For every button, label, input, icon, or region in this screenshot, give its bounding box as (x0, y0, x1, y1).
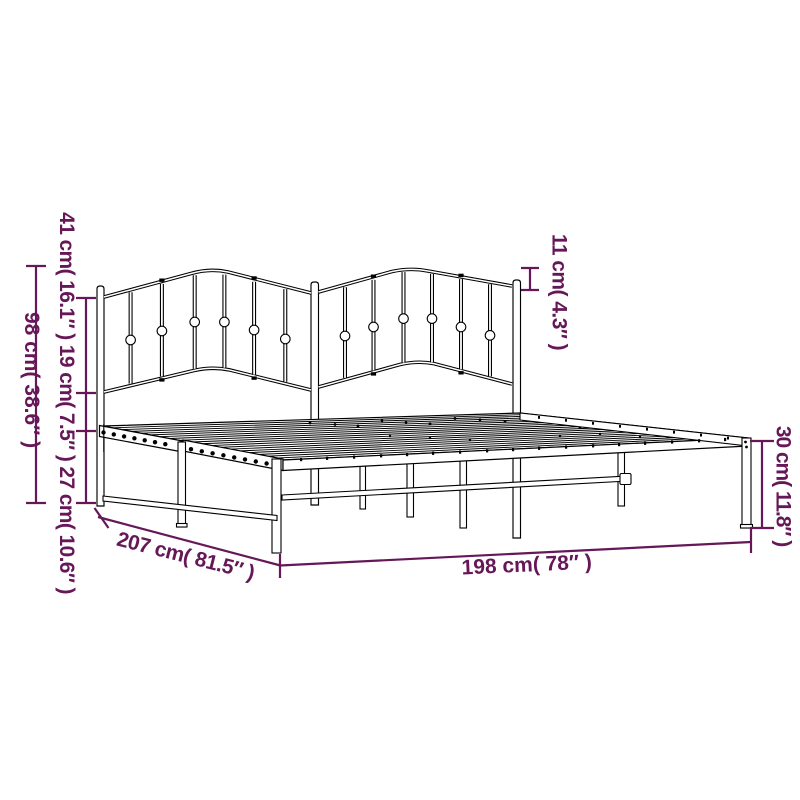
svg-text:98 cm( 38.6″ ): 98 cm( 38.6″ ) (20, 312, 43, 448)
svg-text:41 cm( 16.1″ ) 19 cm( 7.5″ ): 41 cm( 16.1″ ) 19 cm( 7.5″ ) 27 cm( 10.6… (55, 212, 78, 594)
svg-text:30 cm( 11.8″ ): 30 cm( 11.8″ ) (772, 426, 795, 546)
svg-text:11 cm( 4.3″ ): 11 cm( 4.3″ ) (548, 234, 571, 350)
